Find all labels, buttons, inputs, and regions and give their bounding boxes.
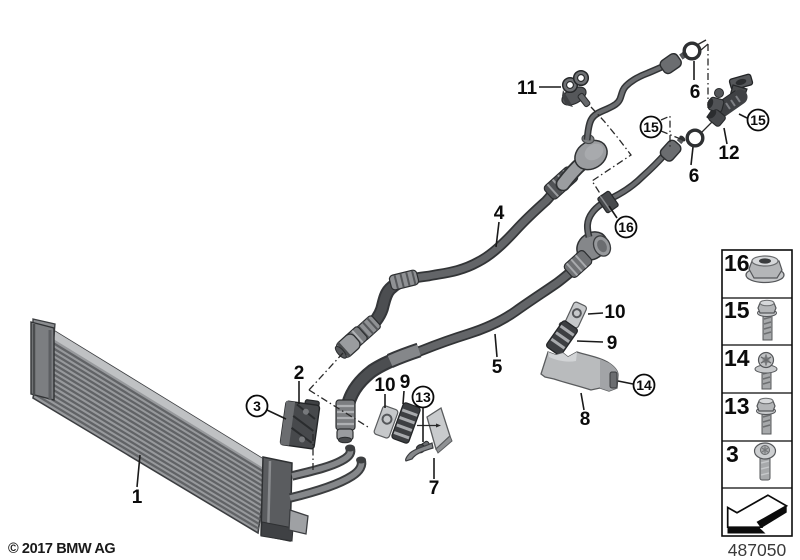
svg-text:3: 3 (253, 398, 261, 414)
svg-text:9: 9 (400, 372, 411, 393)
svg-text:12: 12 (718, 143, 739, 164)
svg-text:6: 6 (690, 82, 701, 103)
svg-text:6: 6 (689, 166, 700, 187)
svg-text:5: 5 (492, 357, 503, 378)
svg-text:16: 16 (618, 219, 634, 235)
svg-text:11: 11 (517, 78, 538, 99)
svg-text:2: 2 (294, 363, 305, 384)
svg-text:14: 14 (636, 377, 652, 393)
svg-text:7: 7 (429, 478, 440, 499)
svg-text:13: 13 (724, 393, 750, 419)
svg-text:15: 15 (750, 112, 766, 128)
svg-text:15: 15 (643, 119, 659, 135)
svg-text:8: 8 (580, 409, 591, 430)
svg-text:3: 3 (726, 441, 739, 467)
svg-text:10: 10 (604, 302, 625, 323)
svg-text:16: 16 (724, 250, 750, 276)
svg-text:14: 14 (724, 345, 750, 371)
svg-text:9: 9 (607, 333, 618, 354)
svg-text:4: 4 (494, 203, 505, 224)
svg-text:© 2017 BMW AG: © 2017 BMW AG (8, 541, 115, 557)
svg-text:1: 1 (132, 487, 143, 508)
svg-text:13: 13 (415, 389, 431, 405)
svg-text:487050: 487050 (728, 540, 787, 560)
svg-text:15: 15 (724, 297, 750, 323)
svg-text:10: 10 (374, 375, 395, 396)
